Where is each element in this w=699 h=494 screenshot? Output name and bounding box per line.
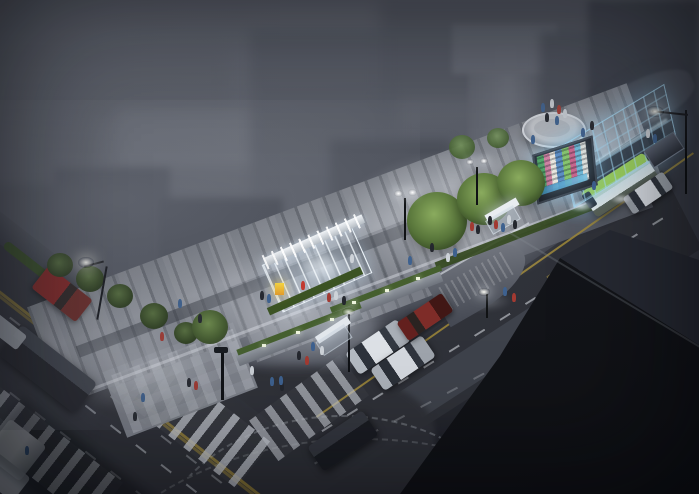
vignette (0, 0, 699, 494)
scene (0, 0, 699, 494)
foreground-layer (0, 0, 699, 494)
